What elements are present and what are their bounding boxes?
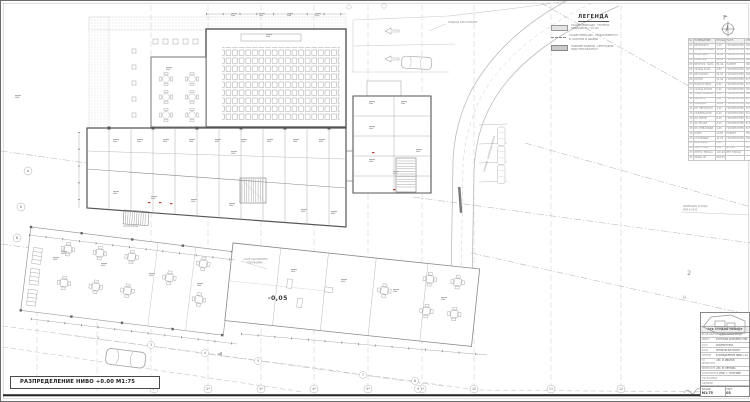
title-block: АРХ СТУДИО ПРОЕКТ ВЪЗЛОЖИТЕЛИНВЕСТИТОР Е… [700,312,750,397]
axis-bubbles-bottom: 1* 2* 3* 4* 5* 6* 10 11 12 [150,385,625,393]
plan-canvas: -0,05 +0,05 АСАНСЬОРНА ПЛАТФОРМА ЖИЛИЩНА… [1,1,750,401]
table-row: 24ОБЩО ЗП 548.60 [689,156,750,161]
boundary-note: ЖИЛИЩНА СГРАДА [683,205,708,208]
right-room-block [346,81,431,193]
svg-text:11: 11 [549,387,553,391]
restaurant-area [132,39,206,127]
legend-item: СЪЩЕСТВУВАЩИ - СТОМАНОБЕТОНБ. КОЛОНИ И Ш… [551,34,683,41]
terrace-left [19,226,233,337]
svg-text:УПИ II-2043: УПИ II-2043 [683,209,698,212]
retaining-wall [458,187,462,213]
drawing-title: РАЗПРЕДЕЛЕНИЕ НИВО +0.00 М1:75 [10,376,160,389]
svg-text:10: 10 [472,387,476,391]
svg-text:9: 9 [417,387,419,391]
svg-text:Б: Б [20,205,22,209]
platform-note: +0,05 АСАНСЬОРНА [243,258,268,261]
right-label-big: 2 [687,269,691,277]
north-compass-icon [721,15,735,37]
auditorium-hall [206,29,346,127]
legend-swatch-solid-dark [551,45,568,51]
entry-label: ±0,00 ВХОД [123,225,138,228]
svg-text:ПЛАТФОРМА: ПЛАТФОРМА [247,262,263,265]
signature-row: ГЛ. ПРОЕКТАНТАРХ. И. ИВАНОВ [701,359,749,367]
legend: ЛЕГЕНДА СЪЩЕСТВУВАЩИ - ТУХЛЕНАЗИДАРИЯ 25… [551,3,683,55]
legend-title: ЛЕГЕНДА [578,14,609,22]
svg-text:7: 7 [362,373,364,377]
right-label-small: Н [683,295,686,300]
road-note: ПОДХОД КЪМ ПАРКИНГ [448,21,478,24]
legend-swatch-dash [551,37,566,38]
svg-text:12: 12 [619,387,623,391]
site-sketch [701,313,749,327]
drawing-sheet: -0,05 +0,05 АСАНСЬОРНА ПЛАТФОРМА ЖИЛИЩНА… [0,0,750,402]
svg-text:2: 2 [97,336,99,340]
scale-value: М1:75 [702,391,724,395]
scale-sheet-row: МАЩАБМ1:75 ЛИСТ03 [701,386,749,396]
legend-item: СЪЩЕСТВУВАЩИ - ТУХЛЕНАЗИДАРИЯ 25 / 12 СМ [551,24,683,31]
svg-text:5: 5 [257,359,259,363]
svg-text:8: 8 [414,379,416,383]
svg-text:3*: 3* [259,387,263,391]
svg-text:В: В [16,236,18,240]
svg-text:5*: 5* [366,387,370,391]
signature-scribble [684,389,701,394]
svg-text:4*: 4* [312,387,316,391]
level-label: -0,05 [268,295,288,302]
seat-grid [222,47,340,121]
svg-text:2*: 2* [206,387,210,391]
svg-text:3: 3 [150,343,152,347]
sidewalk-note: ТРОТОАР - БЕТОНОВИ ПЛОЧИ [483,136,496,172]
sheet-number: 03 [726,391,748,395]
legend-item: НОВОИЗГРАДЕНИ - ПРЕГРАДНИЗИД ГИПСОКАРТОН [551,45,683,52]
svg-text:4: 4 [204,351,206,355]
room-schedule-table: №ПОМЕЩЕНИЕПЛОЩНАСТ.СТЕНИТАВАНЗАБ. 01ВЕТР… [688,38,750,161]
legend-swatch-solid-light [551,25,568,31]
